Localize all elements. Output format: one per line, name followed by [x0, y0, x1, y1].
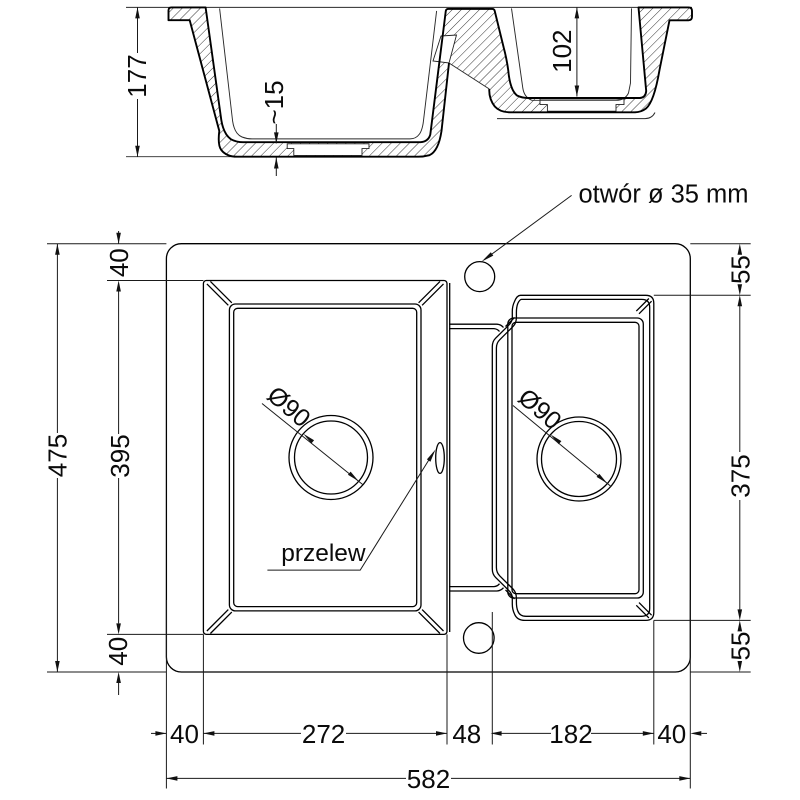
- svg-text:55: 55: [726, 632, 756, 661]
- svg-text:przelew: przelew: [281, 540, 366, 567]
- svg-text:182: 182: [549, 719, 592, 749]
- svg-text:375: 375: [726, 454, 756, 497]
- svg-text:177: 177: [122, 54, 152, 97]
- svg-text:40: 40: [657, 719, 686, 749]
- svg-text:272: 272: [302, 719, 345, 749]
- svg-text:40: 40: [104, 248, 134, 277]
- svg-text:40: 40: [170, 719, 199, 749]
- svg-text:102: 102: [547, 30, 577, 73]
- svg-text:582: 582: [407, 764, 450, 794]
- svg-text:55: 55: [726, 255, 756, 284]
- svg-text:40: 40: [103, 637, 133, 666]
- svg-text:48: 48: [452, 719, 481, 749]
- svg-text:otwór ø 35 mm: otwór ø 35 mm: [579, 181, 749, 209]
- svg-text:475: 475: [43, 434, 73, 477]
- svg-text:395: 395: [105, 434, 135, 477]
- svg-text:~15: ~15: [259, 80, 289, 124]
